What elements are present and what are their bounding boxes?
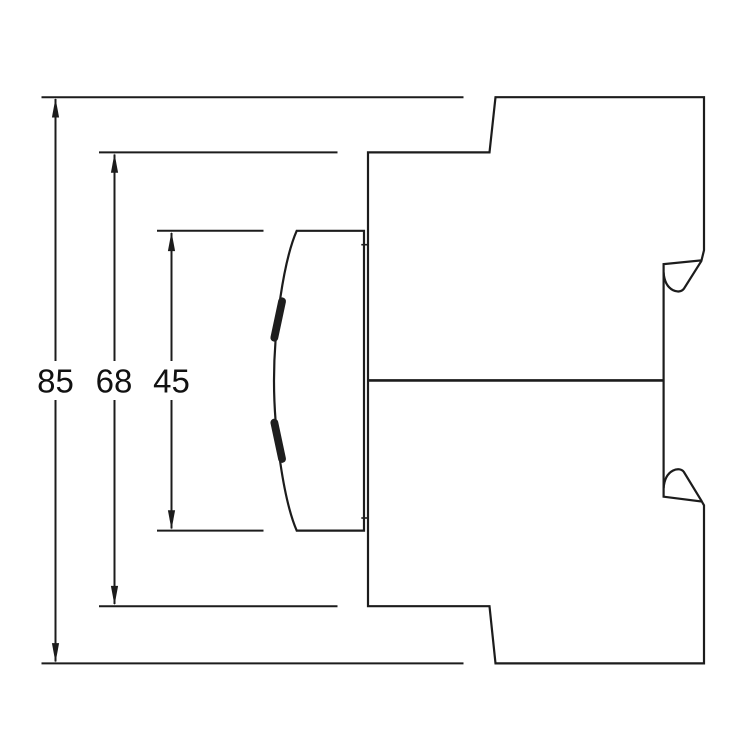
din-claw-top [664,261,702,292]
dimension-label-85: 85 [37,363,74,400]
front-clip-tab-bottom [270,419,286,463]
dimension-labels: 85 68 45 [37,363,190,400]
front-cover-outline [274,231,364,531]
arrow-up-45 [168,232,175,252]
arrow-up-85 [52,98,59,118]
dimension-label-45: 45 [153,363,190,400]
arrow-down-85 [52,643,59,663]
dimension-drawing: 85 68 45 [0,0,750,750]
dimension-label-68: 68 [96,363,133,400]
device-profile [270,97,704,663]
arrow-down-45 [168,510,175,530]
arrow-down-68 [111,586,118,606]
arrow-up-68 [111,153,118,173]
front-clip-tab-top [270,297,286,341]
drawing-svg: 85 68 45 [0,0,750,750]
